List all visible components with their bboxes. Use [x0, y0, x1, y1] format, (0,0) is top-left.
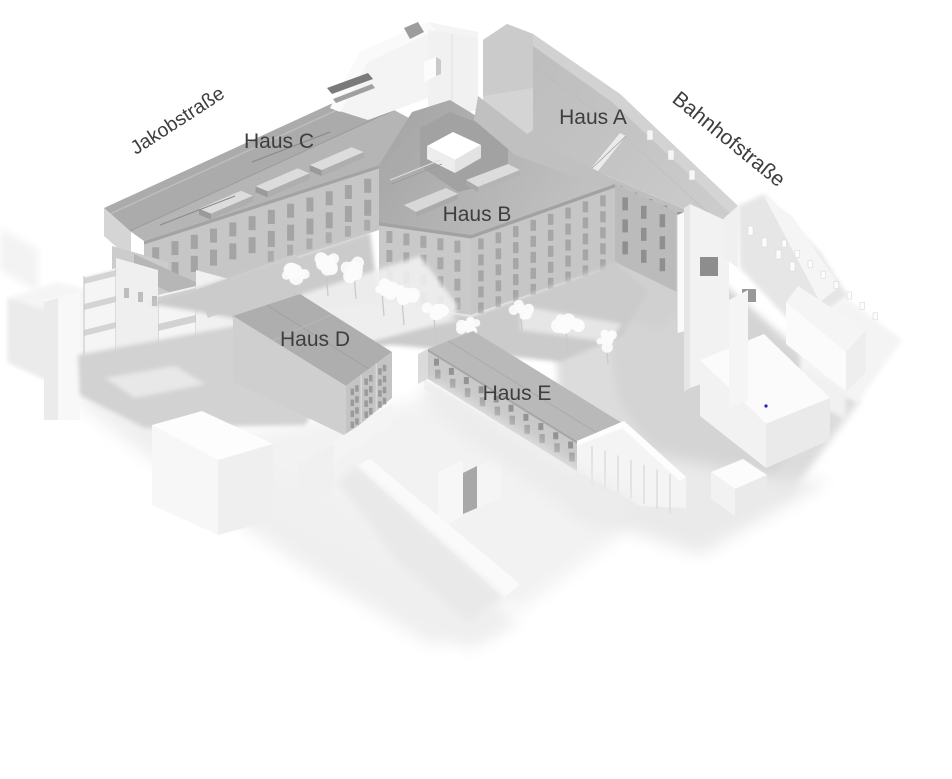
svg-text:Haus E: Haus E — [483, 382, 552, 405]
svg-text:Haus A: Haus A — [559, 106, 627, 129]
svg-text:Haus D: Haus D — [280, 328, 350, 351]
svg-text:Haus C: Haus C — [244, 130, 314, 153]
svg-text:Haus B: Haus B — [443, 203, 512, 226]
